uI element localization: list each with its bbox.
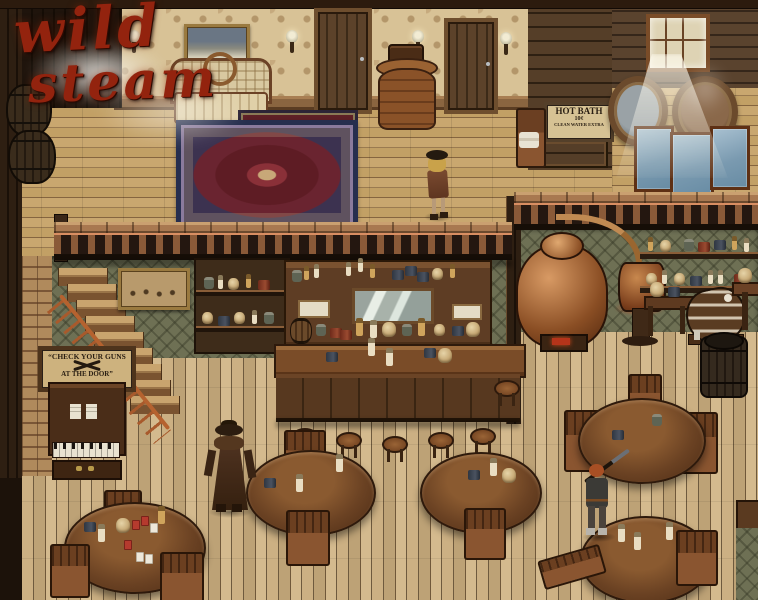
barrel-tap	[694, 330, 700, 340]
crate-panel	[536, 140, 608, 168]
mug	[468, 470, 480, 480]
jug	[466, 322, 480, 337]
jug	[382, 322, 396, 337]
bottle	[314, 264, 319, 278]
bottle	[158, 506, 165, 524]
hat	[426, 150, 448, 160]
game-viewport[interactable]: HOT BATH 10¢ CLEAN WATER EXTRA	[0, 0, 758, 600]
bottle	[346, 262, 351, 276]
boot	[216, 504, 226, 512]
jug	[674, 273, 685, 285]
bottle	[490, 458, 497, 476]
mug	[452, 326, 464, 336]
table-leg	[742, 292, 748, 330]
chair[interactable]	[286, 510, 330, 566]
boot	[232, 504, 242, 512]
bottle	[744, 238, 749, 252]
jar	[316, 324, 326, 336]
bottle	[732, 236, 737, 250]
jar	[204, 277, 214, 289]
check-guns-line2: AT THE DOOR”	[42, 370, 132, 378]
pedestal-foot	[622, 336, 658, 346]
counter-keg	[290, 318, 312, 344]
hot-bath-line1: HOT BATH	[547, 106, 611, 116]
boot	[598, 528, 607, 535]
game-logo-word2: steam	[27, 53, 219, 112]
mug	[84, 522, 96, 532]
bar-counter-front	[276, 374, 520, 422]
balcony-railing-right	[514, 192, 758, 230]
boot	[440, 212, 448, 218]
duster-cowboy-character[interactable]	[200, 420, 258, 524]
back-bar[interactable]	[284, 260, 492, 356]
hall-door[interactable]	[444, 18, 498, 114]
mug	[392, 270, 404, 280]
piano-base	[52, 460, 122, 480]
bottle	[252, 310, 257, 324]
sheet-music	[70, 404, 81, 419]
bottle	[358, 258, 363, 272]
bottle	[666, 522, 673, 540]
playing-card	[150, 523, 158, 533]
fire-glow	[552, 338, 570, 345]
torso	[586, 478, 608, 508]
mug	[218, 316, 230, 326]
wall-lamp-icon	[284, 30, 300, 56]
left-wall-edge	[0, 0, 22, 478]
jug	[116, 518, 130, 533]
mug	[424, 348, 436, 358]
red-hair	[589, 464, 604, 477]
bottle	[370, 320, 377, 338]
bottle	[370, 264, 375, 278]
piano-pedal	[76, 466, 82, 471]
jar	[684, 239, 694, 251]
menu-board	[298, 300, 330, 318]
wall-lamp-icon	[498, 32, 514, 58]
rifle-hunter-character[interactable]	[572, 450, 628, 546]
bottle	[418, 318, 425, 336]
jug	[234, 312, 245, 324]
piano-pedal	[88, 466, 94, 471]
piano-black-keys	[54, 442, 116, 449]
bottle	[246, 274, 251, 288]
jug	[502, 468, 516, 483]
bottle	[296, 474, 303, 492]
jar	[292, 270, 302, 282]
hot-bath-line3: CLEAN WATER EXTRA	[547, 122, 611, 127]
bottle	[336, 454, 343, 472]
towels	[519, 132, 539, 148]
playing-card	[132, 520, 140, 530]
bottle	[662, 270, 667, 284]
upstairs-door[interactable]	[314, 8, 372, 114]
jar	[652, 414, 662, 426]
mug	[340, 330, 352, 340]
barrel[interactable]	[8, 130, 56, 184]
barrel-bung	[724, 294, 732, 302]
shoulders	[214, 436, 244, 450]
bar-stool[interactable]	[428, 432, 454, 449]
crossed-pistols-icon	[42, 361, 132, 370]
balcony-railing-left	[54, 222, 512, 260]
jug	[738, 268, 752, 283]
piano[interactable]	[48, 382, 126, 478]
jar	[402, 324, 412, 336]
bottle	[356, 318, 363, 336]
check-guns-line1: “CHECK YOUR GUNS	[42, 352, 132, 361]
bottle	[708, 270, 713, 284]
playing-card	[141, 516, 149, 526]
hat-brim	[215, 424, 243, 436]
mug	[714, 240, 726, 250]
arm	[244, 450, 257, 479]
mug	[417, 272, 429, 282]
bar-stool[interactable]	[470, 428, 496, 445]
bath-steam	[682, 62, 728, 114]
bottle	[634, 532, 641, 550]
bar-stool[interactable]	[494, 380, 520, 397]
playing-card	[124, 540, 132, 550]
bottle	[218, 275, 223, 289]
hot-bath-sign: HOT BATH 10¢ CLEAN WATER EXTRA	[544, 102, 614, 142]
horsemen-painting	[118, 268, 190, 310]
arm	[204, 450, 216, 477]
boot	[430, 214, 438, 220]
jug	[228, 278, 239, 290]
bottle	[98, 524, 105, 542]
jug	[650, 282, 664, 297]
bottle	[718, 270, 723, 284]
leg	[588, 506, 595, 528]
chair[interactable]	[50, 544, 90, 598]
bottle	[648, 237, 653, 251]
playing-card	[145, 554, 153, 564]
leg	[599, 506, 606, 528]
menu-board	[452, 304, 482, 320]
sheet-music	[86, 404, 97, 419]
mug	[264, 478, 276, 488]
mug	[258, 280, 270, 290]
dress	[427, 169, 449, 198]
bar-stool[interactable]	[382, 436, 408, 453]
round-cabinet[interactable]	[378, 68, 436, 130]
mug	[612, 430, 624, 440]
mug	[405, 266, 417, 276]
dark-barrel-top	[704, 332, 744, 350]
bottle	[304, 266, 309, 280]
bottle-shelf-left[interactable]	[194, 258, 290, 354]
chair[interactable]	[160, 552, 204, 600]
mug	[698, 242, 710, 252]
jug	[434, 324, 445, 336]
mug	[326, 352, 338, 362]
bottle	[368, 338, 375, 356]
boot	[586, 528, 595, 535]
saloon-girl-character[interactable]	[420, 148, 456, 228]
duster-coat	[212, 444, 248, 510]
chair[interactable]	[676, 530, 718, 586]
mug	[690, 276, 702, 286]
jug	[202, 312, 213, 324]
stand-leg	[680, 306, 685, 334]
jug	[660, 240, 671, 252]
playing-card	[136, 552, 144, 562]
jug	[432, 268, 443, 280]
mug	[668, 287, 680, 297]
still-dome	[540, 232, 584, 260]
jug	[438, 348, 452, 363]
jar	[264, 312, 274, 324]
bar-counter-top[interactable]	[274, 344, 526, 378]
bar-shadow	[276, 420, 520, 428]
corner-wallpaper	[736, 528, 758, 600]
bottle	[386, 348, 393, 366]
chair[interactable]	[464, 508, 506, 560]
bottle	[450, 264, 455, 278]
bar-stool[interactable]	[336, 432, 362, 449]
stand-leg	[648, 306, 653, 336]
